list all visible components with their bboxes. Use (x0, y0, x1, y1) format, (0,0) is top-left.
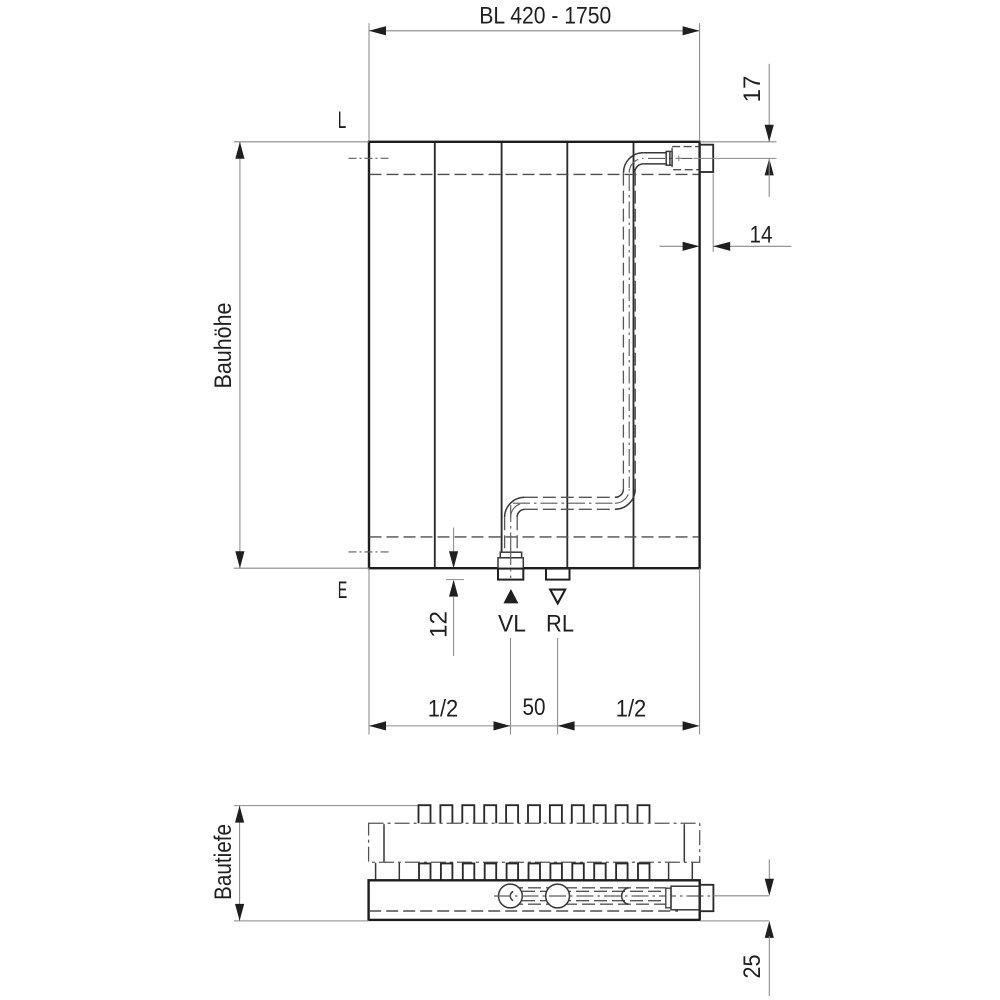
svg-text:1/2: 1/2 (616, 696, 647, 723)
svg-text:E: E (338, 577, 348, 604)
svg-text:14: 14 (750, 222, 773, 249)
svg-text:50: 50 (523, 694, 546, 721)
svg-text:17: 17 (739, 76, 766, 103)
svg-text:L: L (338, 107, 347, 134)
svg-text:25: 25 (739, 955, 766, 979)
svg-text:RL: RL (546, 611, 574, 638)
svg-text:12: 12 (426, 611, 453, 638)
svg-text:BL 420 - 1750: BL 420 - 1750 (479, 3, 611, 30)
svg-text:Bautiefe: Bautiefe (210, 824, 237, 900)
svg-text:VL: VL (498, 611, 526, 638)
svg-text:Bauhöhe: Bauhöhe (210, 303, 237, 389)
svg-text:1/2: 1/2 (428, 696, 459, 723)
